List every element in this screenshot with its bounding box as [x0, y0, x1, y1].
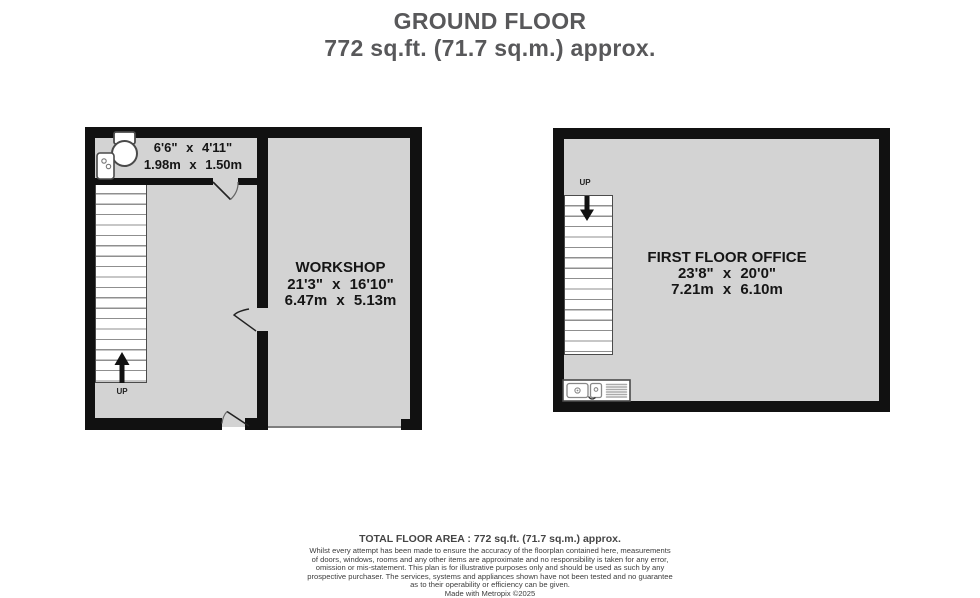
ground-floor-staircase	[95, 183, 147, 383]
workshop-dims-metric: 6.47m x 5.13m	[258, 293, 423, 310]
page-title: GROUND FLOOR 772 sq.ft. (71.7 sq.m.) app…	[0, 8, 980, 62]
title-floor-name: GROUND FLOOR	[0, 8, 980, 35]
wall-right	[879, 128, 890, 412]
office-dims-metric: 7.21m x 6.10m	[637, 282, 817, 298]
metropix-credit: Made with Metropix ©2025	[0, 590, 980, 598]
wall-top	[85, 127, 422, 138]
interior-wall-divider-lower	[257, 331, 268, 418]
wc-dims-imperial: 6'6" x 4'11"	[118, 140, 268, 157]
office-room-label: FIRST FLOOR OFFICE 23'8" x 20'0" 7.21m x…	[637, 250, 817, 298]
workshop-name: WORKSHOP	[258, 260, 423, 277]
workshop-dims-imperial: 21'3" x 16'10"	[258, 277, 423, 294]
office-name: FIRST FLOOR OFFICE	[637, 250, 817, 266]
wall-divider-foot	[245, 418, 268, 430]
title-floor-area: 772 sq.ft. (71.7 sq.m.) approx.	[0, 35, 980, 62]
wc-room-label: 6'6" x 4'11" 1.98m x 1.50m	[118, 140, 268, 173]
office-dims-imperial: 23'8" x 20'0"	[637, 266, 817, 282]
wall-top	[553, 128, 890, 139]
wall-bottom-right-stub	[401, 419, 422, 430]
wall-left	[553, 128, 564, 412]
wc-wall-right-segment	[238, 178, 257, 185]
workshop-room-label: WORKSHOP 21'3" x 16'10" 6.47m x 5.13m	[258, 260, 423, 310]
wc-wall-left-segment	[95, 178, 213, 185]
wc-dims-metric: 1.98m x 1.50m	[118, 157, 268, 174]
wall-bottom	[553, 401, 890, 412]
workshop-open-edge-line	[268, 426, 401, 428]
wall-bottom-left	[85, 418, 222, 430]
stairs-up-label: UP	[103, 387, 141, 396]
wall-left	[85, 127, 95, 430]
stairs-up-label: UP	[569, 178, 601, 187]
ground-floor-plan: 6'6" x 4'11" 1.98m x 1.50m WORKSHOP 21'3…	[85, 127, 422, 430]
first-floor-plan: FIRST FLOOR OFFICE 23'8" x 20'0" 7.21m x…	[553, 128, 890, 412]
footer: TOTAL FLOOR AREA : 772 sq.ft. (71.7 sq.m…	[0, 533, 980, 598]
first-floor-staircase	[564, 195, 613, 355]
floorplan-page: GROUND FLOOR 772 sq.ft. (71.7 sq.m.) app…	[0, 0, 980, 598]
total-floor-area: TOTAL FLOOR AREA : 772 sq.ft. (71.7 sq.m…	[0, 533, 980, 545]
